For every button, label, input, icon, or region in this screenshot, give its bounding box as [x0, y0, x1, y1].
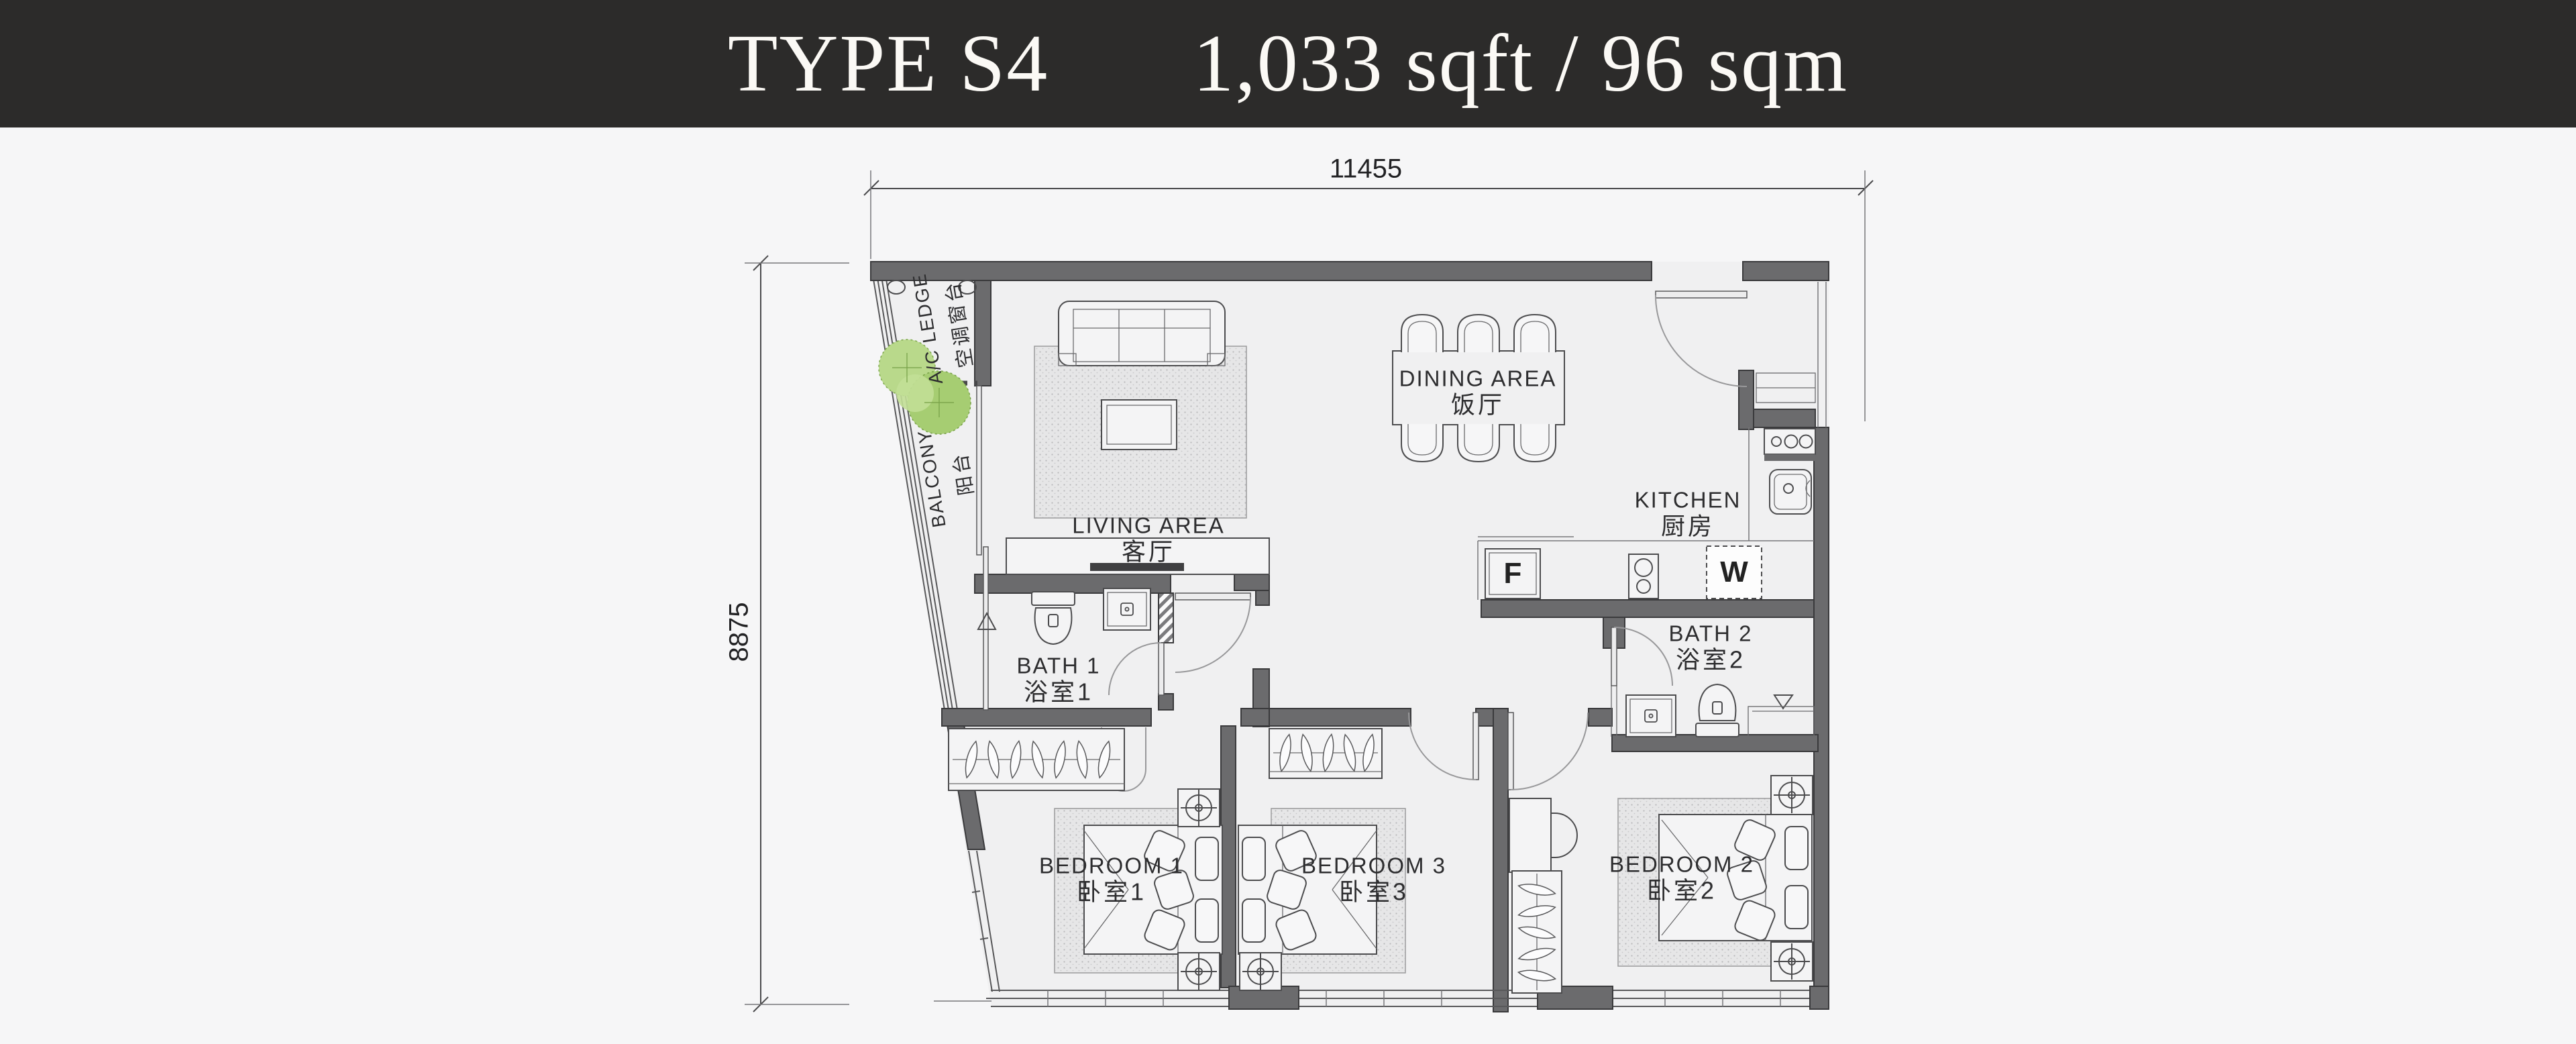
coffee-table [1102, 400, 1177, 450]
bedroom2-label: BEDROOM 2 卧室2 [1609, 852, 1754, 904]
kitchen-label-zh: 厨房 [1635, 513, 1741, 539]
bedroom1-label-zh: 卧室1 [1039, 878, 1184, 905]
dimension-height-label: 8875 [724, 603, 755, 662]
bedroom2-label-en: BEDROOM 2 [1609, 852, 1754, 877]
bath2-label: BATH 2 浴室2 [1668, 621, 1752, 673]
bath2-label-zh: 浴室2 [1668, 646, 1752, 673]
bath1-label-zh: 浴室1 [1016, 678, 1100, 705]
dimension-left [745, 256, 849, 1012]
bedroom3-label-zh: 卧室3 [1301, 878, 1446, 905]
kitchen-label: KITCHEN 厨房 [1635, 488, 1741, 539]
living-area-label: LIVING AREA 客厅 [1072, 513, 1224, 565]
bedroom1-label: BEDROOM 1 卧室1 [1039, 853, 1184, 905]
bedroom2-label-zh: 卧室2 [1609, 877, 1754, 904]
bedroom3-label-en: BEDROOM 3 [1301, 853, 1446, 878]
dining-area-label-zh: 饭厅 [1399, 391, 1557, 418]
washer-label: W [1720, 556, 1748, 589]
bath1-label: BATH 1 浴室1 [1016, 654, 1100, 705]
dining-area-label-en: DINING AREA [1399, 366, 1557, 391]
floorplan-page: TYPE S4 1,033 sqft / 96 sqm [0, 0, 2576, 1044]
living-area-label-zh: 客厅 [1072, 538, 1224, 565]
dining-area-label: DINING AREA 饭厅 [1399, 366, 1557, 418]
fridge-label: F [1504, 557, 1522, 590]
living-area-label-en: LIVING AREA [1072, 513, 1224, 538]
bedroom1-label-en: BEDROOM 1 [1039, 853, 1184, 878]
floor-plan-drawing [0, 0, 2576, 1044]
bedroom3-label: BEDROOM 3 卧室3 [1301, 853, 1446, 905]
kitchen-label-en: KITCHEN [1635, 488, 1741, 513]
bath1-label-en: BATH 1 [1016, 654, 1100, 678]
dimension-width-label: 11455 [1330, 154, 1402, 185]
bath2-label-en: BATH 2 [1668, 621, 1752, 646]
sofa [1059, 301, 1225, 366]
